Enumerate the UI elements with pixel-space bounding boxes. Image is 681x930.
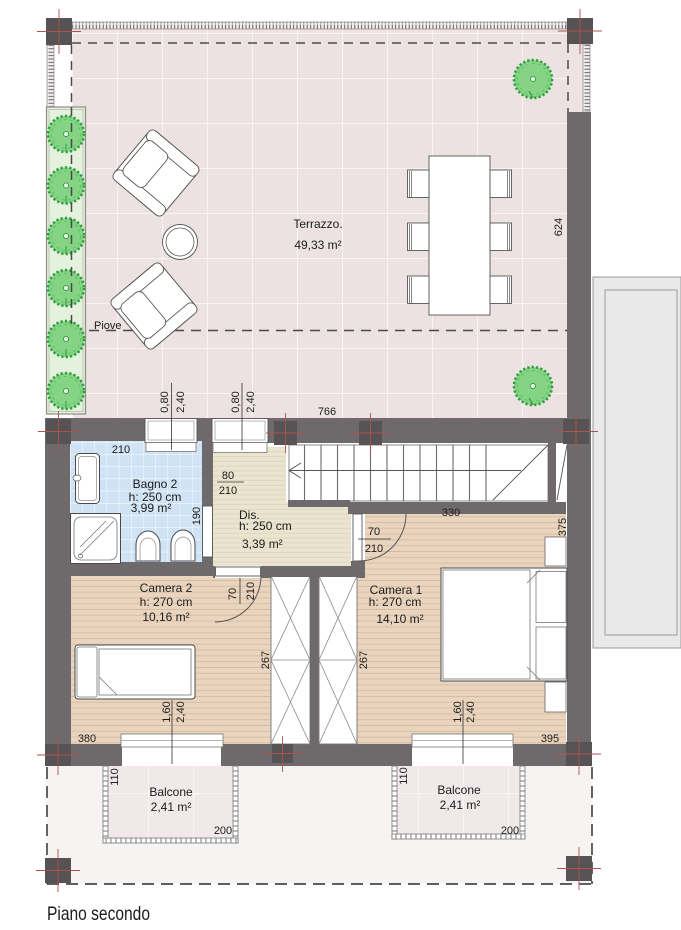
svg-text:h: 270 cm: h: 270 cm [369, 595, 422, 609]
svg-text:2,41 m²: 2,41 m² [440, 798, 481, 812]
svg-text:395: 395 [541, 733, 559, 745]
svg-text:Terrazzo.: Terrazzo. [293, 217, 342, 231]
svg-text:200: 200 [501, 825, 519, 837]
svg-text:380: 380 [78, 733, 96, 745]
svg-text:3,99 m²: 3,99 m² [131, 501, 172, 515]
svg-text:2,40: 2,40 [465, 701, 477, 722]
svg-text:Balcone: Balcone [437, 783, 481, 797]
svg-text:110: 110 [109, 768, 121, 786]
svg-text:267: 267 [358, 651, 370, 669]
svg-text:80: 80 [222, 470, 234, 482]
svg-text:49,33 m²: 49,33 m² [294, 238, 341, 252]
svg-text:2,40: 2,40 [175, 391, 187, 412]
svg-text:10,16 m²: 10,16 m² [142, 610, 189, 624]
svg-text:h: 250 cm: h: 250 cm [239, 519, 292, 533]
svg-text:1,60: 1,60 [161, 701, 173, 722]
svg-text:70: 70 [227, 588, 239, 600]
svg-text:2,41 m²: 2,41 m² [151, 800, 192, 814]
svg-text:210: 210 [219, 485, 237, 497]
svg-text:0,80: 0,80 [159, 391, 171, 412]
svg-text:Camera 2: Camera 2 [140, 581, 193, 595]
svg-text:Bagno 2: Bagno 2 [133, 477, 178, 491]
svg-text:Piano secondo: Piano secondo [47, 903, 150, 925]
svg-text:110: 110 [398, 767, 410, 785]
svg-text:2,40: 2,40 [175, 701, 187, 722]
svg-text:200: 200 [214, 825, 232, 837]
svg-text:766: 766 [318, 406, 336, 418]
svg-text:2,40: 2,40 [245, 391, 257, 412]
svg-text:210: 210 [112, 444, 130, 456]
svg-text:624: 624 [553, 218, 565, 236]
svg-text:h: 270 cm: h: 270 cm [140, 595, 193, 609]
svg-text:0,80: 0,80 [230, 391, 242, 412]
svg-text:267: 267 [260, 651, 272, 669]
svg-text:Piove: Piove [94, 320, 122, 332]
svg-text:330: 330 [442, 507, 460, 519]
svg-text:190: 190 [191, 507, 203, 525]
svg-text:375: 375 [557, 518, 569, 536]
svg-text:70: 70 [368, 526, 380, 538]
svg-text:210: 210 [245, 582, 257, 600]
svg-text:3,39 m²: 3,39 m² [242, 537, 283, 551]
svg-text:14,10 m²: 14,10 m² [376, 612, 423, 626]
svg-text:210: 210 [365, 543, 383, 555]
svg-text:Balcone: Balcone [149, 785, 193, 799]
svg-text:1,60: 1,60 [452, 701, 464, 722]
